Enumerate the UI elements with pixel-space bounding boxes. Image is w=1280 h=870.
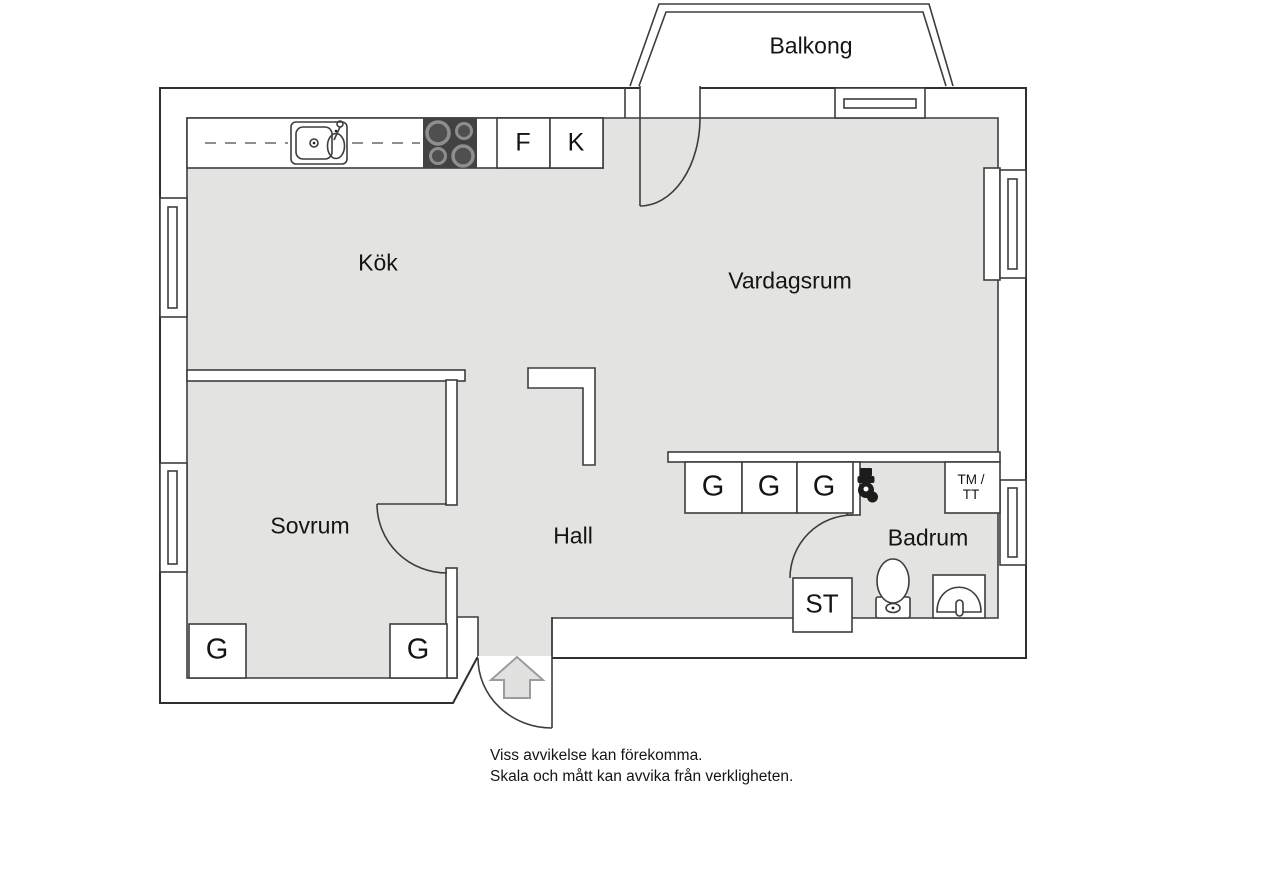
window-livingroom: [984, 168, 1026, 280]
freezer-label: K: [568, 129, 585, 158]
laundry-label: TM / TT: [958, 472, 985, 502]
disclaimer-text: Viss avvikelse kan förekomma. Skala och …: [490, 745, 793, 787]
disclaimer-line2: Skala och mått kan avvika från verklighe…: [490, 766, 793, 787]
wall-livingroom-hall: [668, 452, 1000, 462]
laundry-label-line2: TT: [958, 487, 985, 502]
disclaimer-line1: Viss avvikelse kan förekomma.: [490, 745, 793, 766]
window-top: [835, 88, 925, 118]
wall-kitchen-bedroom: [187, 370, 465, 381]
room-label-bathroom: Badrum: [888, 525, 969, 552]
laundry-label-line1: TM /: [958, 472, 985, 487]
room-label-balcony: Balkong: [769, 33, 852, 60]
room-label-bedroom: Sovrum: [270, 513, 349, 540]
floor-plan-drawing: [0, 0, 1280, 870]
window-bedroom: [160, 463, 187, 572]
wardrobe-label-bedroom-2: G: [407, 634, 430, 667]
room-label-hall: Hall: [553, 523, 593, 550]
washbasin-icon: [933, 575, 985, 618]
fridge-label: F: [515, 129, 530, 158]
stove-icon: [423, 118, 477, 168]
wardrobe-label-hall-1: G: [702, 471, 725, 504]
cleaning-cabinet-label: ST: [805, 589, 838, 620]
sink-icon: [291, 121, 347, 164]
window-bathroom: [1000, 480, 1026, 565]
floor-plan: Balkong Kök Vardagsrum Sovrum Hall Badru…: [0, 0, 1280, 870]
wardrobe-label-hall-2: G: [758, 471, 781, 504]
toilet-icon: [876, 559, 910, 618]
wall-bedroom-upper: [446, 380, 457, 505]
wardrobe-label-hall-3: G: [813, 471, 836, 504]
room-label-livingroom: Vardagsrum: [728, 268, 852, 295]
entrance-arrow: [491, 657, 543, 698]
room-label-kitchen: Kök: [358, 250, 398, 277]
wardrobe-label-bedroom-1: G: [206, 634, 229, 667]
window-kitchen: [160, 198, 187, 317]
